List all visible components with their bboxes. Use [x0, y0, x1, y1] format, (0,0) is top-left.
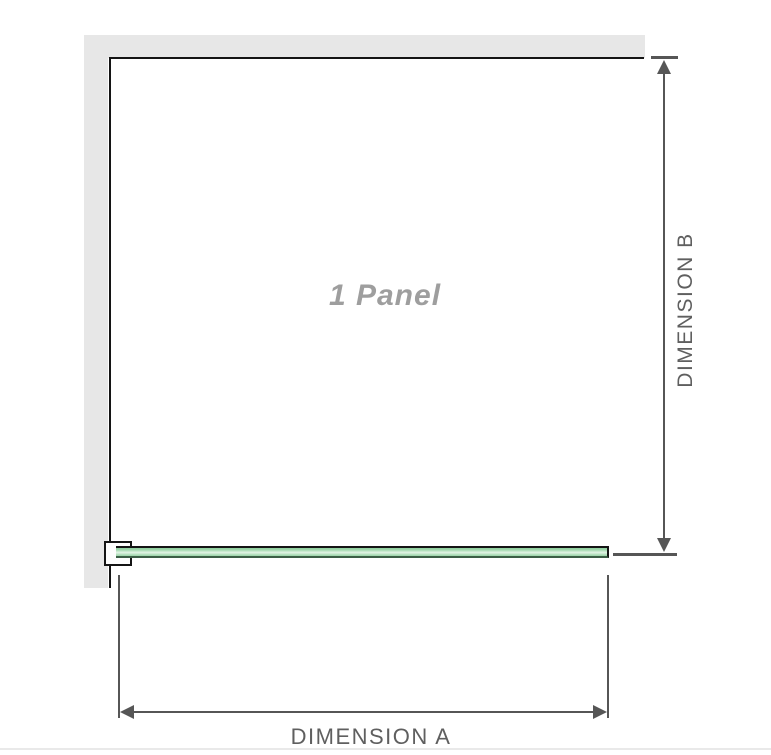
dimension-a-extension-right — [607, 575, 609, 718]
panel-left-edge — [109, 57, 111, 588]
arrow-right-icon — [593, 705, 607, 719]
arrow-up-icon — [657, 60, 671, 74]
page-bottom-edge — [0, 748, 771, 750]
dimension-a-label: DIMENSION A — [271, 725, 471, 749]
dimension-b-label: DIMENSION B — [675, 200, 697, 420]
shower-panel-diagram: 1 Panel DIMENSION B DIMENSION A — [0, 0, 771, 755]
wall-left-segment — [84, 35, 108, 588]
panel-top-edge — [110, 57, 644, 59]
arrow-left-icon — [120, 705, 134, 719]
dimension-a-line — [130, 711, 597, 713]
panel-count-label: 1 Panel — [295, 277, 475, 315]
arrow-down-icon — [657, 538, 671, 552]
dimension-b-cap-top — [651, 56, 678, 59]
glass-panel-plan — [116, 546, 609, 558]
dimension-b-line — [663, 66, 665, 546]
dimension-a-extension-left — [118, 575, 120, 718]
wall-top-segment — [84, 35, 645, 58]
dimension-b-cap-bottom — [613, 553, 677, 556]
